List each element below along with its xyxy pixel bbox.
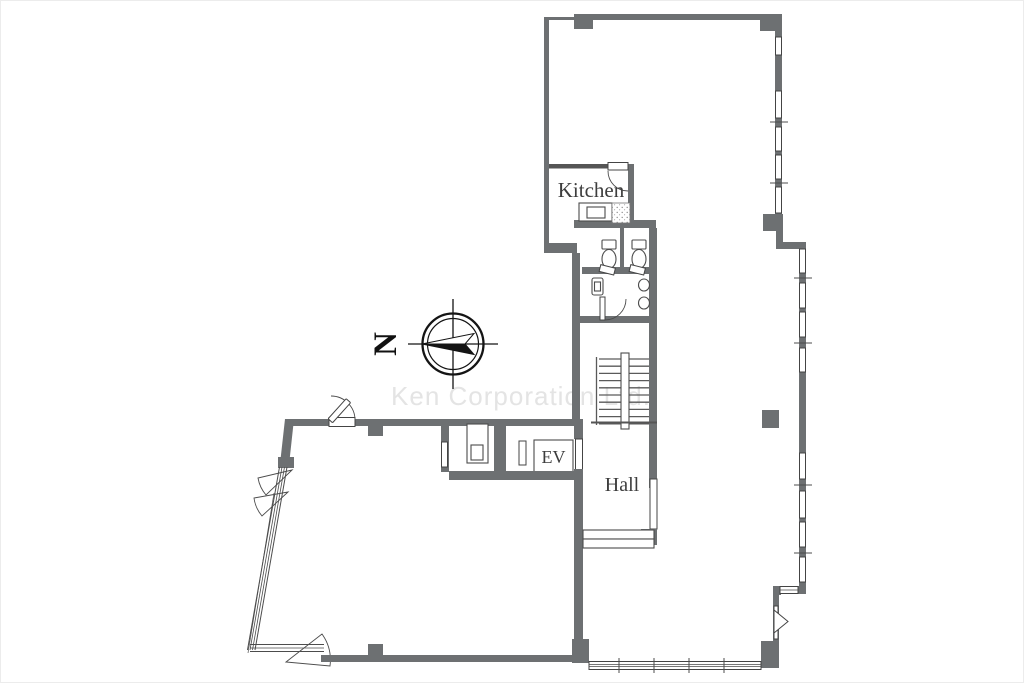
column [760,14,782,31]
kitchen-room: Kitchen [544,163,656,254]
column [574,14,593,29]
hall-west-door [576,439,583,470]
utility-door [442,442,448,467]
exterior-walls [544,14,806,668]
hall-label: Hall [605,474,640,496]
watermark: Ken Corporation Ltd. [391,381,651,411]
compass-rose: N [368,299,498,389]
column [572,639,589,663]
column [763,214,783,231]
compass-needle [422,334,474,345]
kitchen-label: Kitchen [558,178,625,202]
compass-needle [422,344,474,355]
toilet-area [572,228,657,488]
elevator-label: EV [542,447,566,467]
kitchen-tile [612,203,630,223]
washroom-door [600,297,605,320]
kitchen-sink [587,207,605,218]
wall-urinal [639,297,650,309]
hall: Hall [574,419,657,641]
free-column [762,410,779,428]
entry-step [583,530,654,539]
hall-east-door [650,479,657,529]
stair-handrail [621,353,629,429]
kitchen-door [608,163,628,171]
column [368,644,383,655]
toilet-fixture [602,240,616,269]
floor-plan-page: Ken Corporation Ltd. [0,0,1024,683]
windows-bottom [589,658,761,673]
watermark-text: Ken Corporation Ltd. [391,381,651,411]
floor-plan-drawing: Ken Corporation Ltd. [1,1,1024,683]
column [368,426,383,436]
entry-step [583,539,654,548]
bay-window-marker [774,610,788,633]
column [761,641,779,668]
toilet-fixture [632,240,646,269]
windows-right-lower [774,249,812,639]
wall-urinal [639,279,650,291]
compass-north-letter: N [368,332,404,356]
ev-door [519,441,526,465]
